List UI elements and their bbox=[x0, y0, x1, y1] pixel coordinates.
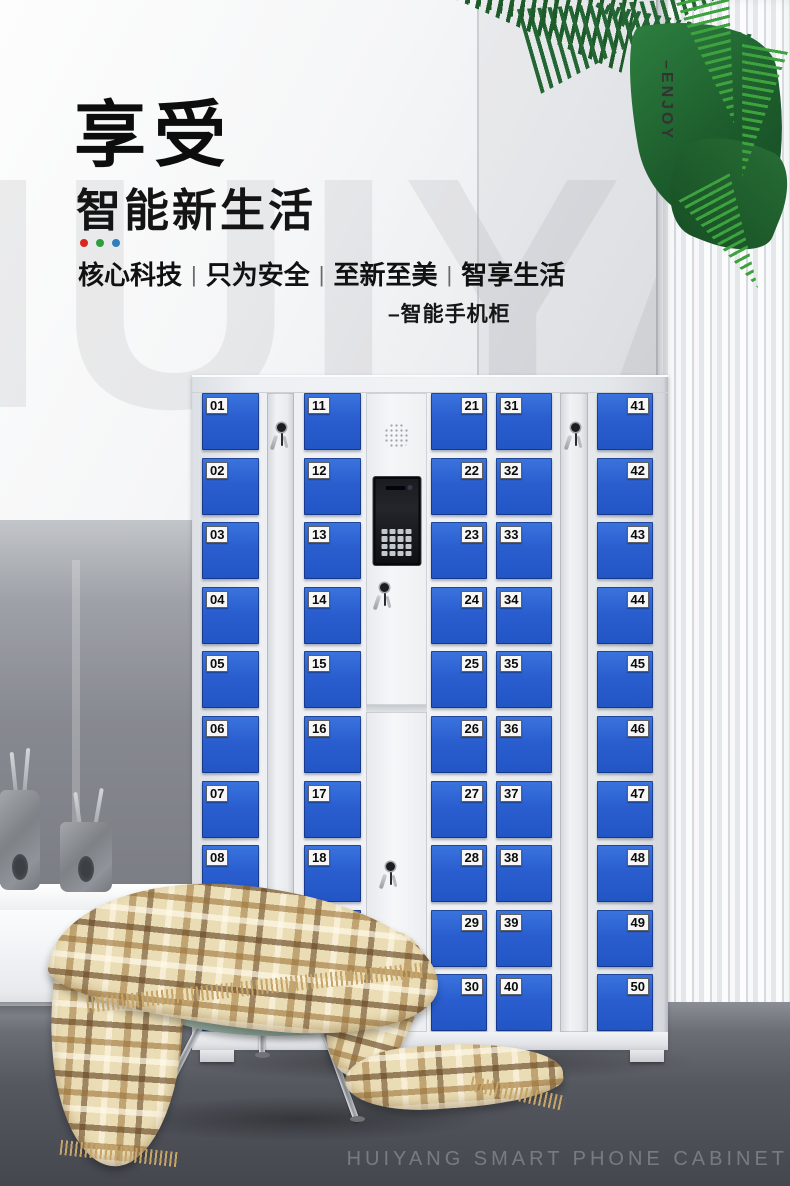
door-number-label: 16 bbox=[308, 720, 330, 737]
door-number-label: 21 bbox=[461, 397, 483, 414]
locker-door: 32 bbox=[496, 458, 552, 515]
locker-door: 02 bbox=[202, 458, 259, 515]
locker-door: 23 bbox=[431, 522, 487, 579]
locker-door: 04 bbox=[202, 587, 259, 644]
enjoy-vertical-label: –ENJOY bbox=[657, 60, 675, 141]
door-number-label: 01 bbox=[206, 397, 228, 414]
lock-strip-column-2 bbox=[560, 393, 588, 1032]
door-number-label: 04 bbox=[206, 591, 228, 608]
locker-door: 21 bbox=[431, 393, 487, 450]
tagline-separator: | bbox=[437, 262, 461, 287]
door-number-label: 30 bbox=[461, 978, 483, 995]
service-door-key-lock-icon bbox=[380, 862, 400, 908]
locker-door: 14 bbox=[304, 587, 361, 644]
door-number-label: 23 bbox=[461, 526, 483, 543]
vase bbox=[0, 790, 40, 890]
page-title: 享受 bbox=[74, 100, 234, 172]
door-number-label: 05 bbox=[206, 655, 228, 672]
locker-column-4: 31323334353637383940 bbox=[496, 393, 552, 1032]
locker-door: 15 bbox=[304, 651, 361, 708]
door-number-label: 36 bbox=[500, 720, 522, 737]
door-number-label: 25 bbox=[461, 655, 483, 672]
page-subtitle: 智能新生活 bbox=[76, 186, 316, 236]
door-number-label: 03 bbox=[206, 526, 228, 543]
curtain bbox=[656, 0, 790, 1042]
door-number-label: 28 bbox=[461, 849, 483, 866]
key-lock-icon bbox=[271, 423, 291, 469]
locker-door: 49 bbox=[597, 910, 653, 967]
door-number-label: 50 bbox=[627, 978, 649, 995]
keypad bbox=[382, 529, 412, 556]
panel-key-lock-icon bbox=[374, 583, 394, 629]
door-number-label: 15 bbox=[308, 655, 330, 672]
locker-door: 34 bbox=[496, 587, 552, 644]
door-number-label: 24 bbox=[461, 591, 483, 608]
locker-door: 11 bbox=[304, 393, 361, 450]
tagline-segment: 智享生活 bbox=[461, 260, 565, 290]
locker-door: 13 bbox=[304, 522, 361, 579]
camera-slit-icon bbox=[385, 486, 405, 490]
locker-door: 25 bbox=[431, 651, 487, 708]
locker-door: 28 bbox=[431, 845, 487, 902]
speaker-grille-icon bbox=[384, 423, 410, 449]
locker-door: 17 bbox=[304, 781, 361, 838]
blue-dot-icon bbox=[112, 239, 120, 247]
locker-door: 48 bbox=[597, 845, 653, 902]
door-number-label: 22 bbox=[461, 462, 483, 479]
locker-door: 07 bbox=[202, 781, 259, 838]
door-number-label: 37 bbox=[500, 785, 522, 802]
door-number-label: 43 bbox=[627, 526, 649, 543]
locker-door: 27 bbox=[431, 781, 487, 838]
tagline: 核心科技|只为安全|至新至美|智享生活 bbox=[78, 255, 565, 292]
door-number-label: 40 bbox=[500, 978, 522, 995]
door-number-label: 13 bbox=[308, 526, 330, 543]
door-number-label: 38 bbox=[500, 849, 522, 866]
door-number-label: 12 bbox=[308, 462, 330, 479]
locker-door: 46 bbox=[597, 716, 653, 773]
locker-door: 16 bbox=[304, 716, 361, 773]
locker-door: 37 bbox=[496, 781, 552, 838]
door-number-label: 18 bbox=[308, 849, 330, 866]
panel-divider bbox=[366, 705, 427, 712]
locker-door: 43 bbox=[597, 522, 653, 579]
door-number-label: 48 bbox=[627, 849, 649, 866]
door-number-label: 14 bbox=[308, 591, 330, 608]
control-panel bbox=[366, 393, 427, 705]
door-number-label: 42 bbox=[627, 462, 649, 479]
red-dot-icon bbox=[80, 239, 88, 247]
tagline-segment: 核心科技 bbox=[78, 260, 182, 290]
door-number-label: 35 bbox=[500, 655, 522, 672]
locker-door: 33 bbox=[496, 522, 552, 579]
door-number-label: 46 bbox=[627, 720, 649, 737]
locker-door: 26 bbox=[431, 716, 487, 773]
locker-door: 12 bbox=[304, 458, 361, 515]
bench-foot bbox=[350, 1116, 365, 1122]
product-label: –智能手机柜 bbox=[388, 298, 511, 328]
locker-door: 44 bbox=[597, 587, 653, 644]
locker-door: 31 bbox=[496, 393, 552, 450]
door-number-label: 32 bbox=[500, 462, 522, 479]
camera-lens-icon bbox=[407, 485, 412, 490]
locker-door: 45 bbox=[597, 651, 653, 708]
locker-door: 29 bbox=[431, 910, 487, 967]
door-number-label: 27 bbox=[461, 785, 483, 802]
locker-door: 35 bbox=[496, 651, 552, 708]
door-number-label: 06 bbox=[206, 720, 228, 737]
door-number-label: 02 bbox=[206, 462, 228, 479]
poster: HUIYANG 01020304050607080910 11121314151… bbox=[0, 0, 790, 1186]
vase bbox=[60, 822, 112, 892]
locker-door: 05 bbox=[202, 651, 259, 708]
bench-foot bbox=[255, 1052, 270, 1058]
terminal-screen bbox=[373, 477, 420, 565]
locker-door: 18 bbox=[304, 845, 361, 902]
locker-door: 47 bbox=[597, 781, 653, 838]
door-number-label: 39 bbox=[500, 914, 522, 931]
door-number-label: 11 bbox=[308, 397, 330, 414]
tagline-separator: | bbox=[182, 262, 206, 287]
locker-door: 38 bbox=[496, 845, 552, 902]
locker-door: 36 bbox=[496, 716, 552, 773]
door-number-label: 31 bbox=[500, 397, 522, 414]
door-number-label: 33 bbox=[500, 526, 522, 543]
door-number-label: 41 bbox=[627, 397, 649, 414]
locker-door: 30 bbox=[431, 974, 487, 1031]
door-number-label: 07 bbox=[206, 785, 228, 802]
tagline-separator: | bbox=[310, 262, 334, 287]
door-number-label: 34 bbox=[500, 591, 522, 608]
door-number-label: 29 bbox=[461, 914, 483, 931]
door-number-label: 45 bbox=[627, 655, 649, 672]
tagline-segment: 至新至美 bbox=[333, 260, 437, 290]
locker-door: 42 bbox=[597, 458, 653, 515]
cabinet-foot bbox=[630, 1050, 664, 1062]
locker-door: 41 bbox=[597, 393, 653, 450]
door-number-label: 26 bbox=[461, 720, 483, 737]
locker-door: 40 bbox=[496, 974, 552, 1031]
door-number-label: 44 bbox=[627, 591, 649, 608]
door-number-label: 47 bbox=[627, 785, 649, 802]
green-dot-icon bbox=[96, 239, 104, 247]
locker-column-5: 41424344454647484950 bbox=[597, 393, 653, 1032]
locker-door: 06 bbox=[202, 716, 259, 773]
locker-door: 01 bbox=[202, 393, 259, 450]
locker-door: 22 bbox=[431, 458, 487, 515]
locker-door: 39 bbox=[496, 910, 552, 967]
door-number-label: 17 bbox=[308, 785, 330, 802]
locker-door: 03 bbox=[202, 522, 259, 579]
cabinet-foot bbox=[200, 1050, 234, 1062]
locker-door: 24 bbox=[431, 587, 487, 644]
locker-door: 50 bbox=[597, 974, 653, 1031]
door-number-label: 08 bbox=[206, 849, 228, 866]
accent-dots bbox=[80, 239, 120, 247]
tagline-segment: 只为安全 bbox=[206, 260, 310, 290]
locker-column-3: 21222324252627282930 bbox=[431, 393, 487, 1032]
door-number-label: 49 bbox=[627, 914, 649, 931]
key-lock-icon bbox=[565, 423, 585, 469]
